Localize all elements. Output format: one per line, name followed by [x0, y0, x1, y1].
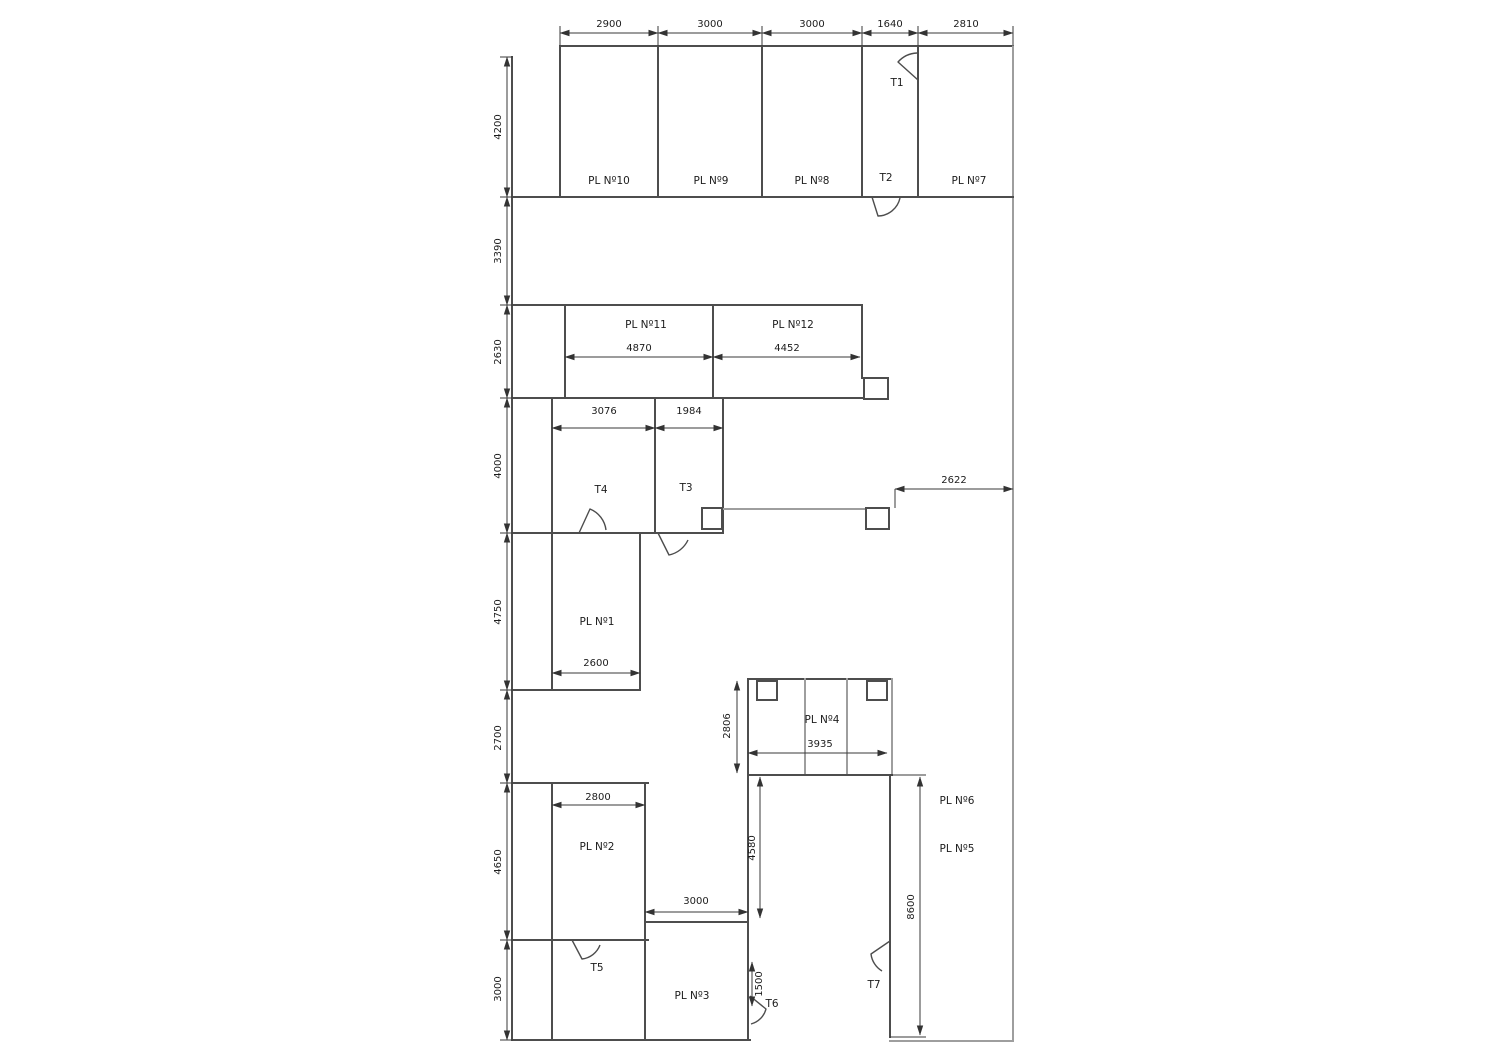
door-arc-t5 [572, 940, 600, 959]
columns [702, 378, 889, 700]
dim-left-4: 4000 [493, 453, 504, 478]
door-arc-t2 [872, 197, 900, 216]
dim-left-5: 4750 [493, 599, 504, 624]
room-label-pl12: PL Nº12 [772, 319, 814, 331]
room-label-pl1: PL Nº1 [579, 616, 614, 628]
dim-left-1: 4200 [493, 114, 504, 139]
dim-top-4: 1640 [877, 19, 902, 30]
dim-pl2-width: 2800 [585, 792, 610, 803]
column-post [864, 378, 888, 399]
dim-left-7: 4650 [493, 849, 504, 874]
door-swings [572, 53, 918, 1024]
dim-pl12-width: 4452 [774, 343, 799, 354]
dim-t6-opening: 1500 [754, 971, 765, 996]
door-label-t6: T6 [764, 998, 778, 1010]
door-arc-t1 [898, 53, 918, 80]
dim-top-5: 2810 [953, 19, 978, 30]
floor-plan-canvas: 2900 3000 3000 1640 2810 4200 3390 2630 … [0, 0, 1500, 1061]
door-label-t4: T4 [593, 484, 607, 496]
room-label-pl4: PL Nº4 [804, 714, 839, 726]
interior-dimension-lines [552, 357, 1013, 1037]
room-label-pl5: PL Nº5 [939, 843, 974, 855]
dim-right-corridor: 2622 [941, 475, 966, 486]
dim-left-6: 2700 [493, 725, 504, 750]
column-post [867, 681, 887, 700]
dim-t3-width: 1984 [676, 406, 701, 417]
door-arc-t4 [579, 509, 606, 533]
dim-top-1: 2900 [596, 19, 621, 30]
bottom-left-walls [512, 679, 750, 1040]
top-dimension-lines [560, 26, 1013, 46]
pl11-pl12-block-walls [512, 305, 888, 398]
column-post [866, 508, 889, 529]
dim-passage-height: 4580 [747, 835, 758, 860]
dim-top-2: 3000 [697, 19, 722, 30]
dim-pl3-width: 3000 [683, 896, 708, 907]
column-post [757, 681, 777, 700]
door-labels: T1 T2 T4 T3 T5 T6 T7 [589, 77, 903, 1010]
t4-t3-block-walls [512, 398, 723, 533]
top-room-band-walls [512, 46, 1013, 197]
dim-left-8: 3000 [493, 976, 504, 1001]
dimension-labels: 2900 3000 3000 1640 2810 4200 3390 2630 … [493, 19, 979, 1002]
room-label-pl11: PL Nº11 [625, 319, 667, 331]
room-label-pl7: PL Nº7 [951, 175, 986, 187]
room-label-pl10: PL Nº10 [588, 175, 630, 187]
room-label-pl2: PL Nº2 [579, 841, 614, 853]
door-arc-t7 [871, 941, 890, 971]
room-label-pl9: PL Nº9 [693, 175, 728, 187]
dim-pl4-width: 3935 [807, 739, 832, 750]
column-post [702, 508, 722, 529]
dim-right-wing-height: 8600 [906, 894, 917, 919]
room-label-pl3: PL Nº3 [674, 990, 709, 1002]
floor-plan-drawing: 2900 3000 3000 1640 2810 4200 3390 2630 … [0, 0, 1500, 1061]
door-label-t2: T2 [878, 172, 892, 184]
room-label-pl8: PL Nº8 [794, 175, 829, 187]
dim-left-2: 3390 [493, 238, 504, 263]
dim-pl4-height: 2806 [722, 713, 733, 738]
door-label-t5: T5 [589, 962, 603, 974]
dim-t4-width: 3076 [591, 406, 616, 417]
dim-pl1-width: 2600 [583, 658, 608, 669]
door-label-t3: T3 [678, 482, 692, 494]
dim-left-3: 2630 [493, 339, 504, 364]
room-label-pl6: PL Nº6 [939, 795, 974, 807]
dim-top-3: 3000 [799, 19, 824, 30]
door-arc-t3 [658, 533, 688, 555]
dim-pl11-width: 4870 [626, 343, 651, 354]
pl1-walls [512, 533, 640, 690]
door-label-t1: T1 [889, 77, 903, 89]
door-label-t7: T7 [866, 979, 880, 991]
